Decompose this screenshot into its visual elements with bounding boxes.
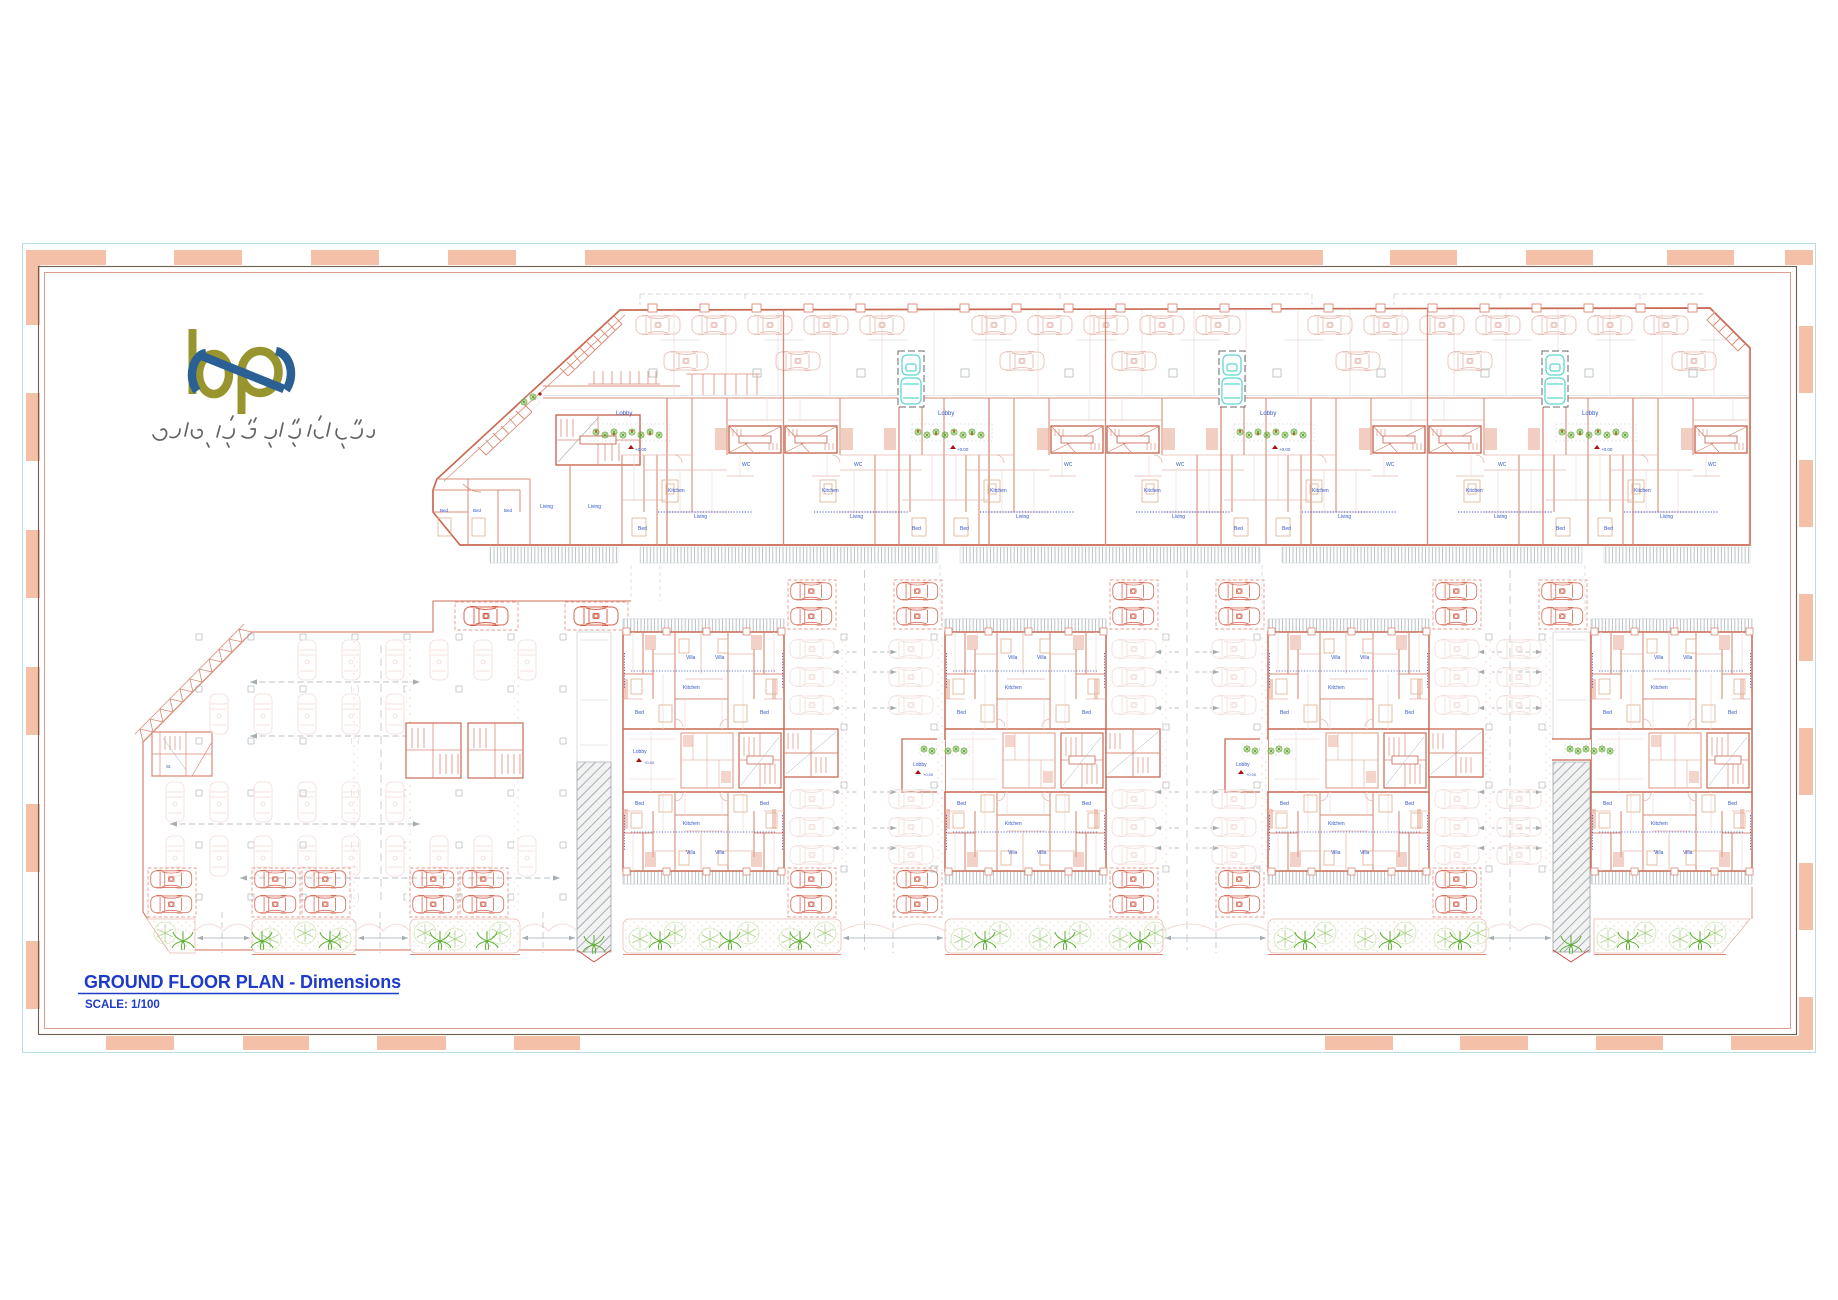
svg-text:+0.00: +0.00	[1246, 772, 1257, 777]
svg-text:Bed: Bed	[1282, 526, 1291, 532]
svg-text:WC: WC	[1176, 462, 1185, 468]
svg-text:Kitchen: Kitchen	[1634, 488, 1651, 494]
svg-text:WC: WC	[1386, 462, 1395, 468]
svg-text:+0.00: +0.00	[1279, 447, 1291, 452]
svg-text:Bed: Bed	[1556, 526, 1565, 532]
svg-text:Kitchen: Kitchen	[1144, 488, 1161, 494]
svg-text:Bed: Bed	[1234, 526, 1243, 532]
svg-text:Lobby: Lobby	[633, 749, 647, 755]
svg-text:WC: WC	[1064, 462, 1073, 468]
svg-text:+0.00: +0.00	[923, 772, 934, 777]
svg-text:GROUND FLOOR PLAN - Dimensions: GROUND FLOOR PLAN - Dimensions	[84, 972, 401, 992]
svg-text:Bed: Bed	[473, 508, 482, 513]
svg-text:Lobby: Lobby	[938, 411, 954, 417]
svg-text:SCALE: 1/100: SCALE: 1/100	[85, 999, 160, 1011]
svg-text:Kitchen: Kitchen	[990, 488, 1007, 494]
svg-text:Kitchen: Kitchen	[822, 488, 839, 494]
svg-text:Bed: Bed	[960, 526, 969, 532]
svg-text:WC: WC	[854, 462, 863, 468]
svg-text:Bed: Bed	[1604, 526, 1613, 532]
svg-text:+0.00: +0.00	[1601, 447, 1613, 452]
svg-text:+0.00: +0.00	[635, 447, 647, 452]
svg-text:Lobby: Lobby	[616, 411, 632, 417]
svg-text:St.: St.	[166, 764, 172, 769]
svg-text:Bed: Bed	[440, 508, 449, 513]
svg-text:Kitchen: Kitchen	[668, 488, 685, 494]
svg-text:Bed: Bed	[504, 508, 513, 513]
svg-text:Bed: Bed	[912, 526, 921, 532]
svg-text:Living: Living	[1338, 514, 1351, 520]
svg-text:Living: Living	[540, 504, 553, 510]
svg-text:Living: Living	[1660, 514, 1673, 520]
svg-text:+0.00: +0.00	[644, 760, 655, 765]
svg-text:Lobby: Lobby	[1236, 762, 1250, 768]
svg-text:Kitchen: Kitchen	[1312, 488, 1329, 494]
svg-text:Living: Living	[1172, 514, 1185, 520]
svg-text:Living: Living	[694, 514, 707, 520]
svg-text:WC: WC	[1708, 462, 1717, 468]
svg-text:Bed: Bed	[638, 526, 647, 532]
svg-text:Living: Living	[850, 514, 863, 520]
svg-text:WC: WC	[742, 462, 751, 468]
svg-text:Living: Living	[1016, 514, 1029, 520]
svg-text:Lobby: Lobby	[1582, 411, 1598, 417]
svg-text:Lobby: Lobby	[913, 762, 927, 768]
svg-text:Living: Living	[1494, 514, 1507, 520]
svg-text:+0.00: +0.00	[957, 447, 969, 452]
svg-text:Living: Living	[588, 504, 601, 510]
svg-text:Lobby: Lobby	[1260, 411, 1276, 417]
svg-text:Kitchen: Kitchen	[1466, 488, 1483, 494]
svg-text:WC: WC	[1498, 462, 1507, 468]
